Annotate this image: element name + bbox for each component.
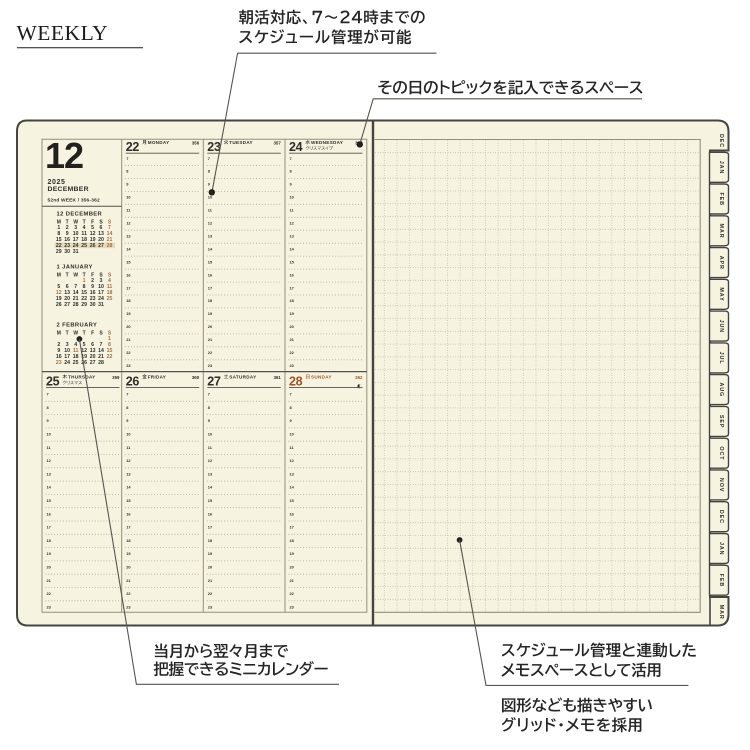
- svg-text:28: 28: [107, 243, 113, 249]
- svg-text:10: 10: [126, 432, 130, 437]
- svg-text:JAN: JAN: [718, 542, 724, 555]
- svg-text:10: 10: [126, 195, 130, 200]
- svg-text:JAN: JAN: [718, 161, 724, 174]
- svg-text:361: 361: [273, 375, 281, 380]
- svg-text:7: 7: [290, 392, 292, 397]
- svg-text:20: 20: [208, 324, 212, 329]
- svg-text:SATURDAY: SATURDAY: [229, 375, 256, 380]
- svg-text:24: 24: [289, 140, 303, 154]
- svg-text:31: 31: [98, 302, 104, 308]
- svg-text:M: M: [57, 330, 61, 336]
- svg-text:DEC: DEC: [718, 510, 724, 524]
- svg-text:26: 26: [90, 243, 96, 249]
- svg-text:357: 357: [273, 141, 281, 146]
- svg-text:SEP: SEP: [718, 415, 724, 429]
- svg-text:W: W: [73, 272, 78, 278]
- svg-text:20: 20: [126, 324, 130, 329]
- svg-text:10: 10: [208, 432, 212, 437]
- svg-text:JUN: JUN: [718, 320, 724, 333]
- svg-text:22: 22: [107, 354, 113, 360]
- svg-text:25: 25: [46, 375, 60, 389]
- svg-text:52nd WEEK / 356-362: 52nd WEEK / 356-362: [48, 198, 100, 204]
- svg-text:MAR: MAR: [718, 605, 724, 620]
- svg-text:359: 359: [112, 375, 120, 380]
- svg-text:17: 17: [126, 285, 130, 290]
- svg-text:25: 25: [81, 243, 87, 249]
- svg-text:NOV: NOV: [718, 478, 724, 492]
- svg-text:T: T: [83, 330, 86, 336]
- svg-text:17: 17: [290, 525, 294, 530]
- svg-text:20: 20: [126, 565, 130, 570]
- svg-text:28: 28: [98, 360, 104, 366]
- svg-text:23: 23: [56, 360, 62, 366]
- svg-text:28: 28: [289, 375, 303, 389]
- svg-text:DEC: DEC: [718, 134, 724, 148]
- svg-text:MAY: MAY: [718, 287, 724, 301]
- svg-text:WEEKLY: WEEKLY: [17, 21, 109, 45]
- svg-text:APR: APR: [718, 256, 724, 270]
- svg-text:26: 26: [126, 375, 140, 389]
- svg-text:27: 27: [207, 375, 221, 389]
- svg-text:27: 27: [98, 243, 104, 249]
- svg-text:FRIDAY: FRIDAY: [148, 375, 166, 380]
- svg-text:10: 10: [290, 195, 294, 200]
- svg-text:7: 7: [126, 156, 128, 161]
- svg-text:29: 29: [81, 302, 87, 308]
- svg-text:17: 17: [47, 525, 51, 530]
- svg-text:7: 7: [290, 156, 292, 161]
- svg-text:20: 20: [290, 565, 294, 570]
- svg-text:10: 10: [290, 432, 294, 437]
- svg-text:26: 26: [56, 302, 62, 308]
- svg-text:2025: 2025: [48, 179, 66, 186]
- svg-text:W: W: [73, 330, 78, 336]
- svg-text:17: 17: [126, 525, 130, 530]
- svg-text:FEB: FEB: [718, 192, 724, 205]
- svg-text:17: 17: [290, 285, 294, 290]
- svg-text:7: 7: [208, 392, 210, 397]
- svg-text:30: 30: [64, 249, 70, 255]
- svg-text:17: 17: [208, 285, 212, 290]
- svg-text:20: 20: [208, 565, 212, 570]
- svg-text:TUESDAY: TUESDAY: [229, 140, 253, 145]
- svg-text:362: 362: [355, 375, 363, 380]
- svg-text:M: M: [57, 272, 61, 278]
- svg-text:27: 27: [90, 360, 96, 366]
- svg-text:7: 7: [208, 156, 210, 161]
- svg-text:SUNDAY: SUNDAY: [311, 375, 332, 380]
- svg-text:7: 7: [47, 392, 49, 397]
- svg-text:28: 28: [73, 302, 79, 308]
- svg-text:356: 356: [192, 141, 200, 146]
- svg-text:17: 17: [208, 525, 212, 530]
- svg-text:12 DECEMBER: 12 DECEMBER: [57, 212, 103, 218]
- svg-text:24: 24: [64, 360, 70, 366]
- svg-text:JUL: JUL: [718, 352, 724, 365]
- svg-text:31: 31: [73, 249, 79, 255]
- svg-text:10: 10: [47, 432, 51, 437]
- svg-text:25: 25: [107, 296, 113, 302]
- svg-text:T: T: [66, 272, 69, 278]
- svg-text:22: 22: [126, 140, 140, 154]
- svg-text:2 FEBRUARY: 2 FEBRUARY: [57, 323, 98, 329]
- svg-text:12: 12: [45, 135, 83, 176]
- svg-text:7: 7: [126, 392, 128, 397]
- svg-text:25: 25: [73, 360, 79, 366]
- svg-text:WEDNESDAY: WEDNESDAY: [311, 140, 343, 145]
- svg-text:29: 29: [56, 249, 62, 255]
- svg-text:OCT: OCT: [718, 446, 724, 460]
- svg-text:DECEMBER: DECEMBER: [48, 186, 89, 193]
- svg-text:360: 360: [192, 375, 200, 380]
- svg-text:20: 20: [47, 565, 51, 570]
- svg-text:MONDAY: MONDAY: [148, 140, 170, 145]
- svg-text:AUG: AUG: [718, 382, 724, 397]
- svg-text:T: T: [66, 330, 69, 336]
- svg-text:THURSDAY: THURSDAY: [68, 375, 96, 380]
- svg-text:27: 27: [64, 302, 70, 308]
- svg-text:20: 20: [290, 324, 294, 329]
- svg-text:1 JANUARY: 1 JANUARY: [57, 265, 93, 271]
- svg-text:MAR: MAR: [718, 224, 724, 239]
- svg-text:FEB: FEB: [718, 574, 724, 587]
- svg-text:F: F: [91, 330, 94, 336]
- svg-text:30: 30: [90, 302, 96, 308]
